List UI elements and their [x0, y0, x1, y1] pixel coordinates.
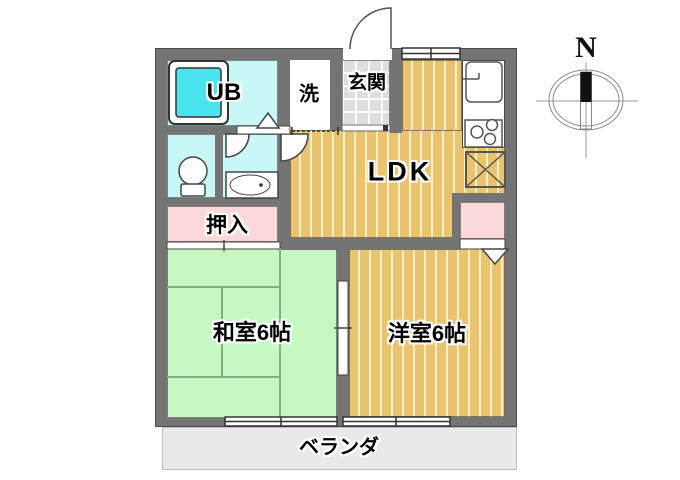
label-laundry: 洗: [299, 78, 319, 107]
fixtures-overlay: [0, 0, 680, 480]
oshiire-sliding-door-icon: [167, 240, 280, 251]
label-ldk: LDK: [368, 157, 433, 188]
label-ub: UB: [207, 79, 242, 107]
refrigerator-space-icon: [466, 152, 505, 187]
label-entrance: 玄関: [348, 68, 386, 95]
room-sliding-door-icon: [334, 281, 352, 375]
washroom-door-arc-icon: [226, 134, 249, 157]
label-washitsu: 和室6帖: [213, 315, 291, 347]
stove-icon: [465, 120, 502, 148]
label-oshiire: 押入: [206, 209, 248, 239]
compass-icon: [536, 62, 638, 158]
entrance-door-arc-icon: [350, 8, 391, 49]
washbasin-icon: [226, 172, 278, 198]
ldk-door-arc-icon: [281, 134, 308, 161]
entrance-step-line: [342, 125, 390, 131]
compass-n-label: N: [575, 31, 597, 65]
kitchen-sink-icon: [462, 62, 502, 102]
closet-folding-door-icon: [460, 239, 508, 264]
label-youshitsu: 洋室6帖: [388, 316, 466, 348]
floor-plan: UB 洗 玄関 LDK 押入 和室6帖 洋室6帖 ベランダ N: [0, 0, 680, 480]
ub-folding-door-icon: [237, 113, 290, 134]
toilet-icon: [179, 157, 207, 196]
label-veranda: ベランダ: [299, 431, 379, 460]
